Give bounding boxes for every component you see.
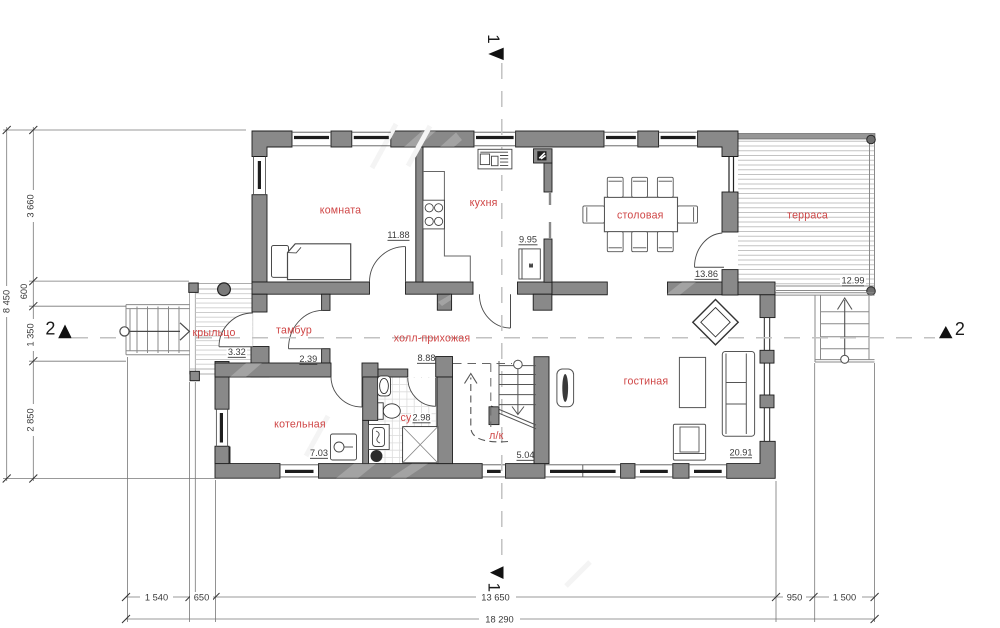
svg-text:20.91: 20.91: [730, 448, 753, 458]
svg-text:гостиная: гостиная: [624, 376, 669, 388]
svg-text:8 450: 8 450: [1, 290, 11, 313]
svg-text:13.86: 13.86: [695, 269, 718, 279]
svg-text:3.32: 3.32: [228, 347, 246, 357]
svg-text:1: 1: [484, 34, 503, 43]
svg-text:2.98: 2.98: [413, 413, 431, 423]
svg-text:1: 1: [485, 583, 504, 592]
svg-text:су: су: [401, 412, 412, 424]
svg-text:650: 650: [194, 592, 210, 602]
svg-text:2.39: 2.39: [299, 354, 317, 364]
svg-text:8.88: 8.88: [418, 353, 436, 363]
svg-text:600: 600: [19, 284, 29, 300]
svg-text:крыльцо: крыльцо: [192, 327, 235, 339]
svg-text:950: 950: [787, 592, 803, 602]
svg-text:2 850: 2 850: [26, 408, 36, 431]
svg-text:9.95: 9.95: [519, 235, 537, 245]
svg-text:л/к: л/к: [489, 430, 504, 442]
svg-text:11.88: 11.88: [387, 230, 409, 240]
svg-text:2: 2: [45, 319, 55, 339]
svg-text:м: м: [529, 263, 533, 269]
svg-text:терраса: терраса: [787, 209, 828, 221]
svg-text:холл-прихожая: холл-прихожая: [394, 333, 471, 345]
svg-text:1 540: 1 540: [145, 592, 168, 602]
svg-text:13 650: 13 650: [481, 592, 509, 602]
svg-text:котельная: котельная: [274, 418, 326, 430]
svg-text:комната: комната: [320, 205, 361, 217]
svg-text:18 290: 18 290: [485, 614, 513, 624]
svg-text:7.03: 7.03: [310, 448, 328, 458]
svg-text:3 660: 3 660: [26, 194, 36, 217]
svg-text:1 500: 1 500: [833, 592, 856, 602]
svg-text:5.04: 5.04: [517, 450, 535, 460]
svg-text:кухня: кухня: [470, 197, 498, 209]
svg-text:1 350: 1 350: [26, 323, 36, 346]
svg-text:тамбур: тамбур: [276, 324, 312, 336]
svg-text:2: 2: [955, 319, 965, 339]
svg-text:столовая: столовая: [617, 210, 664, 222]
svg-text:12.99: 12.99: [842, 276, 865, 286]
